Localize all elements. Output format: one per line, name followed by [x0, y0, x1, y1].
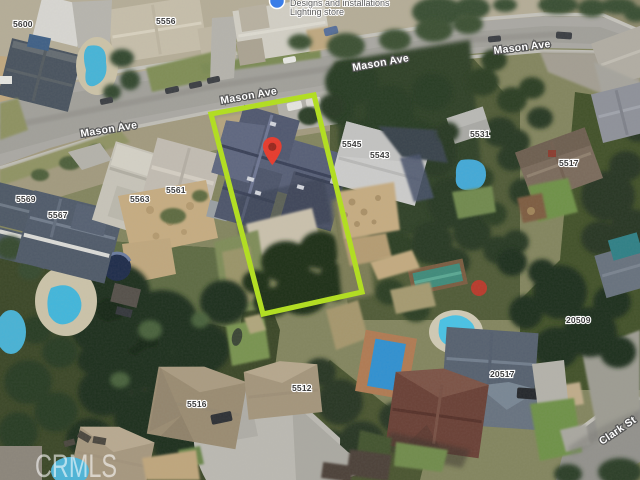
- svg-text:5569: 5569: [16, 194, 36, 204]
- svg-text:5512: 5512: [292, 383, 312, 393]
- svg-text:5567: 5567: [48, 210, 68, 220]
- svg-text:5563: 5563: [130, 194, 150, 204]
- svg-text:5545: 5545: [342, 139, 362, 149]
- svg-text:5561: 5561: [166, 185, 186, 195]
- svg-text:5516: 5516: [187, 399, 207, 409]
- svg-text:5556: 5556: [156, 16, 176, 26]
- svg-text:20517: 20517: [490, 369, 515, 379]
- svg-text:5517: 5517: [559, 158, 579, 168]
- svg-text:20509: 20509: [566, 315, 591, 325]
- svg-text:5531: 5531: [470, 129, 490, 139]
- svg-text:5543: 5543: [370, 150, 390, 160]
- svg-text:CRMLS: CRMLS: [35, 448, 117, 480]
- svg-text:5600: 5600: [13, 19, 33, 29]
- svg-text:Lighting store: Lighting store: [290, 7, 344, 17]
